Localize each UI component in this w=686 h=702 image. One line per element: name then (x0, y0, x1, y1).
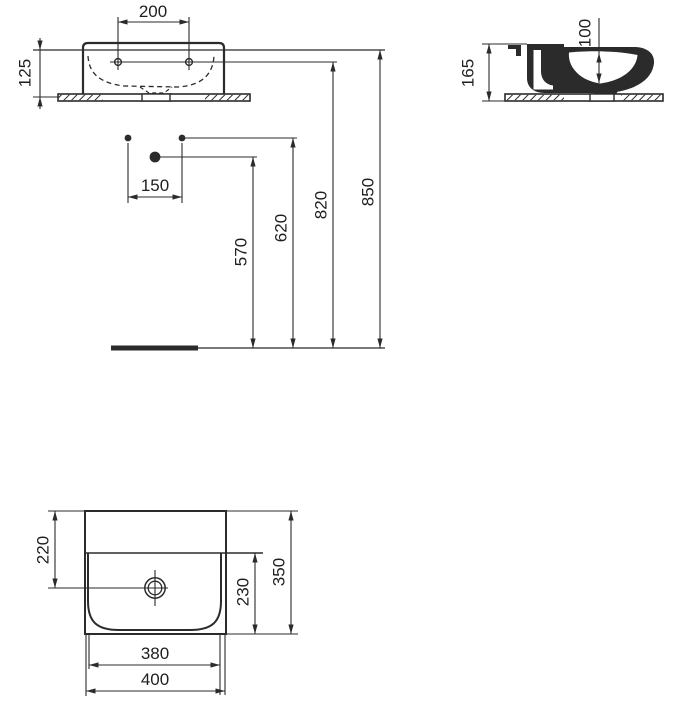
washbasin-dimension-drawing: 200 125 150 570 620 820 850 165 100 (0, 0, 686, 702)
side-view (482, 18, 663, 101)
plan-drain-crosshair (48, 570, 168, 606)
dim-label-100: 100 (576, 19, 595, 47)
shelf-drain-cutout (142, 94, 170, 101)
technical-drawing-page: 200 125 150 570 620 820 850 165 100 (0, 0, 686, 702)
dim-label-350: 350 (270, 558, 289, 586)
dim-label-165: 165 (459, 59, 478, 87)
plan-view (48, 511, 298, 696)
dot-reference-lines (155, 138, 297, 157)
side-shelf-hatch-right (621, 95, 662, 100)
dim-label-620: 620 (272, 214, 291, 242)
dim-label-200: 200 (139, 2, 167, 21)
side-drain-cutout (590, 94, 614, 101)
inner-bowl-dashed (88, 56, 214, 87)
dim-label-125: 125 (16, 59, 35, 87)
basin-cross-section (508, 44, 654, 93)
front-view (33, 17, 385, 348)
shelf-hatch-left (59, 95, 103, 100)
dim-label-380: 380 (141, 644, 169, 663)
dim-label-220: 220 (34, 536, 53, 564)
front-view-labels: 200 125 150 570 620 820 850 (16, 2, 378, 266)
dim-label-820: 820 (312, 191, 331, 219)
dim-label-850: 850 (359, 178, 378, 206)
side-shelf-hatch-left (506, 95, 564, 100)
plan-view-labels: 220 230 350 380 400 (34, 536, 289, 689)
shelf-hatch-right (205, 95, 249, 100)
dim-label-150: 150 (141, 176, 169, 195)
dim-label-570: 570 (232, 238, 251, 266)
dim-label-230: 230 (234, 578, 253, 606)
fixing-dot-left (125, 135, 132, 142)
dim-label-400: 400 (141, 670, 169, 689)
